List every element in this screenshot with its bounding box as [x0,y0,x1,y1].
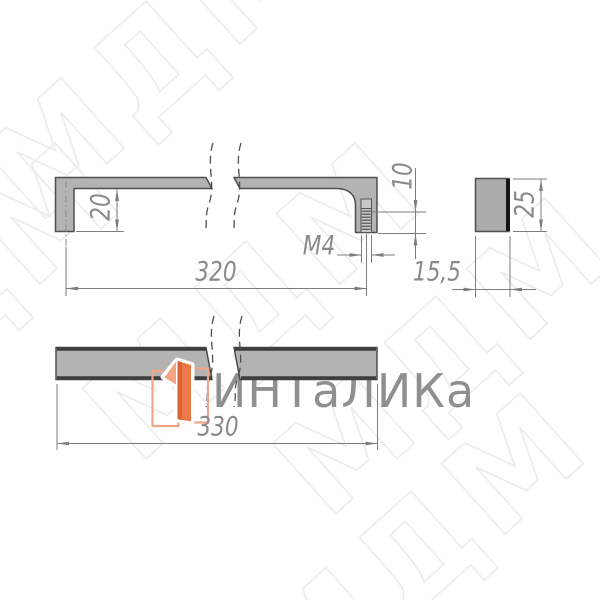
drawing-sheet: МДМ МДМ МДМ МДМ МДМ ИНТаЛИКа [0,0,600,600]
side-view [476,179,510,232]
threaded-hole-m4 [361,199,372,233]
brand-logo-icon [145,355,215,430]
dimension-lines [57,168,547,450]
technical-drawing [0,0,600,600]
dimension-arrows [57,179,543,445]
bottom-view [56,316,377,407]
